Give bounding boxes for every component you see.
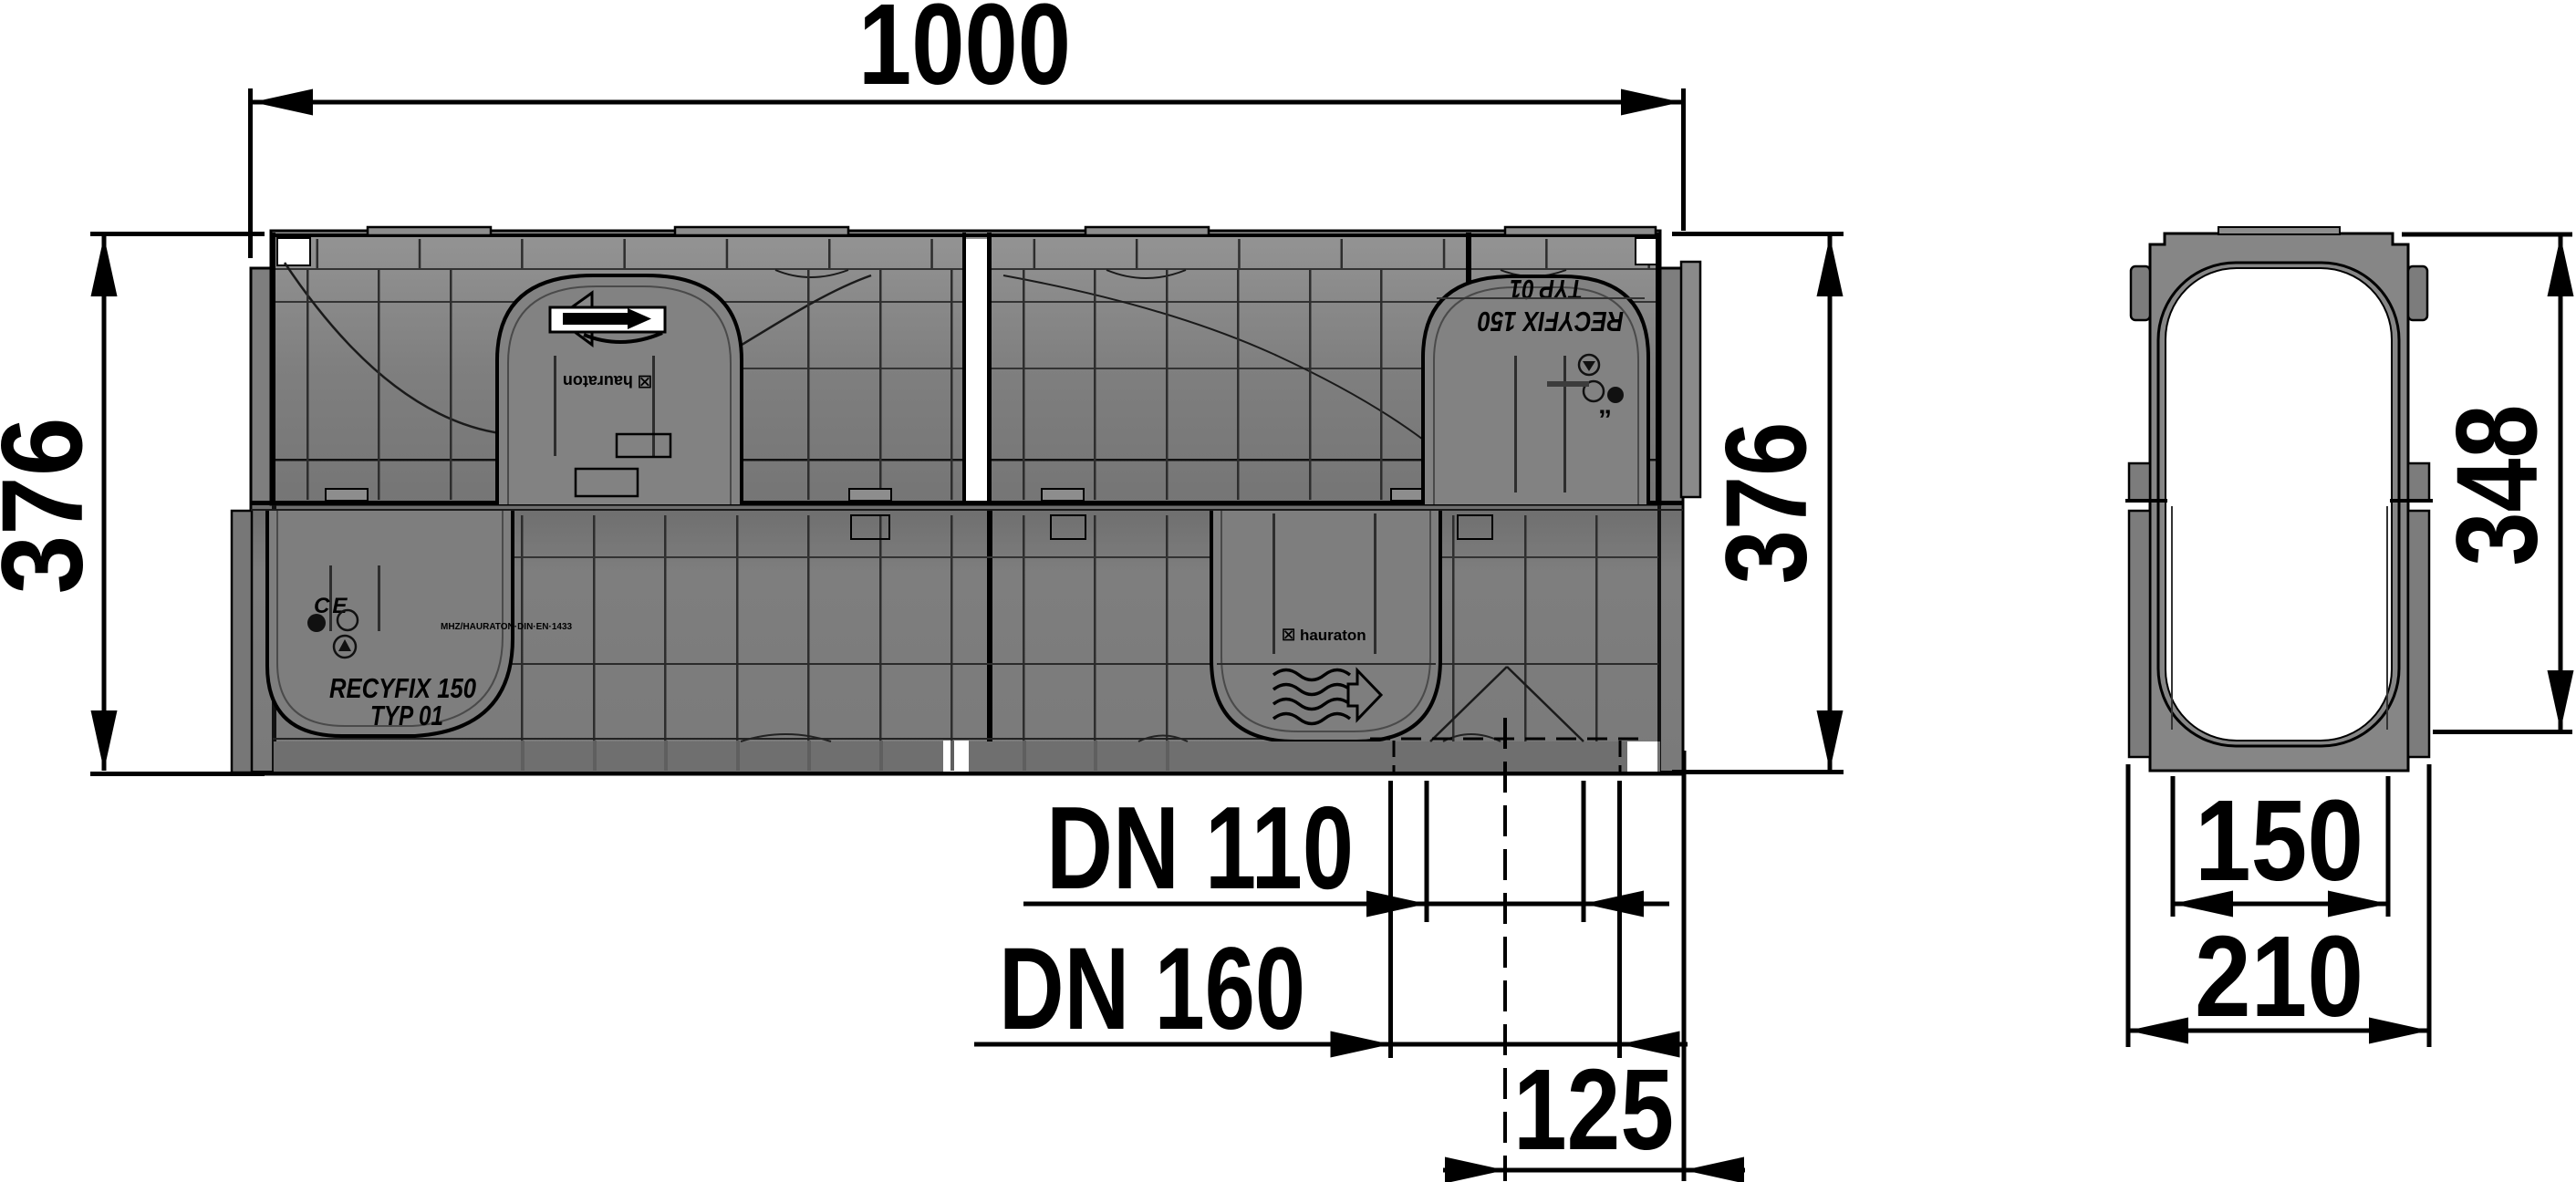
svg-text:MHZ/HAURATON·DIN·EN·1433: MHZ/HAURATON·DIN·EN·1433	[441, 622, 573, 632]
svg-text:DN 110: DN 110	[1046, 783, 1354, 914]
svg-text:”: ”	[1598, 405, 1612, 435]
svg-text:150: 150	[2195, 776, 2363, 905]
svg-text:TYP 01: TYP 01	[1510, 274, 1583, 306]
svg-text:RECYFIX 150: RECYFIX 150	[1478, 306, 1624, 337]
svg-text:376: 376	[1702, 422, 1831, 585]
svg-text:1000: 1000	[858, 0, 1071, 109]
svg-text:TYP 01: TYP 01	[370, 700, 443, 731]
svg-text:348: 348	[2433, 405, 2561, 566]
svg-text:376: 376	[0, 418, 107, 595]
svg-text:☒ hauraton: ☒ hauraton	[1282, 627, 1366, 644]
svg-text:125: 125	[1513, 1045, 1674, 1174]
svg-text:210: 210	[2195, 912, 2363, 1041]
svg-text:DN 160: DN 160	[999, 924, 1305, 1054]
svg-text:☒ hauraton: ☒ hauraton	[563, 372, 652, 390]
